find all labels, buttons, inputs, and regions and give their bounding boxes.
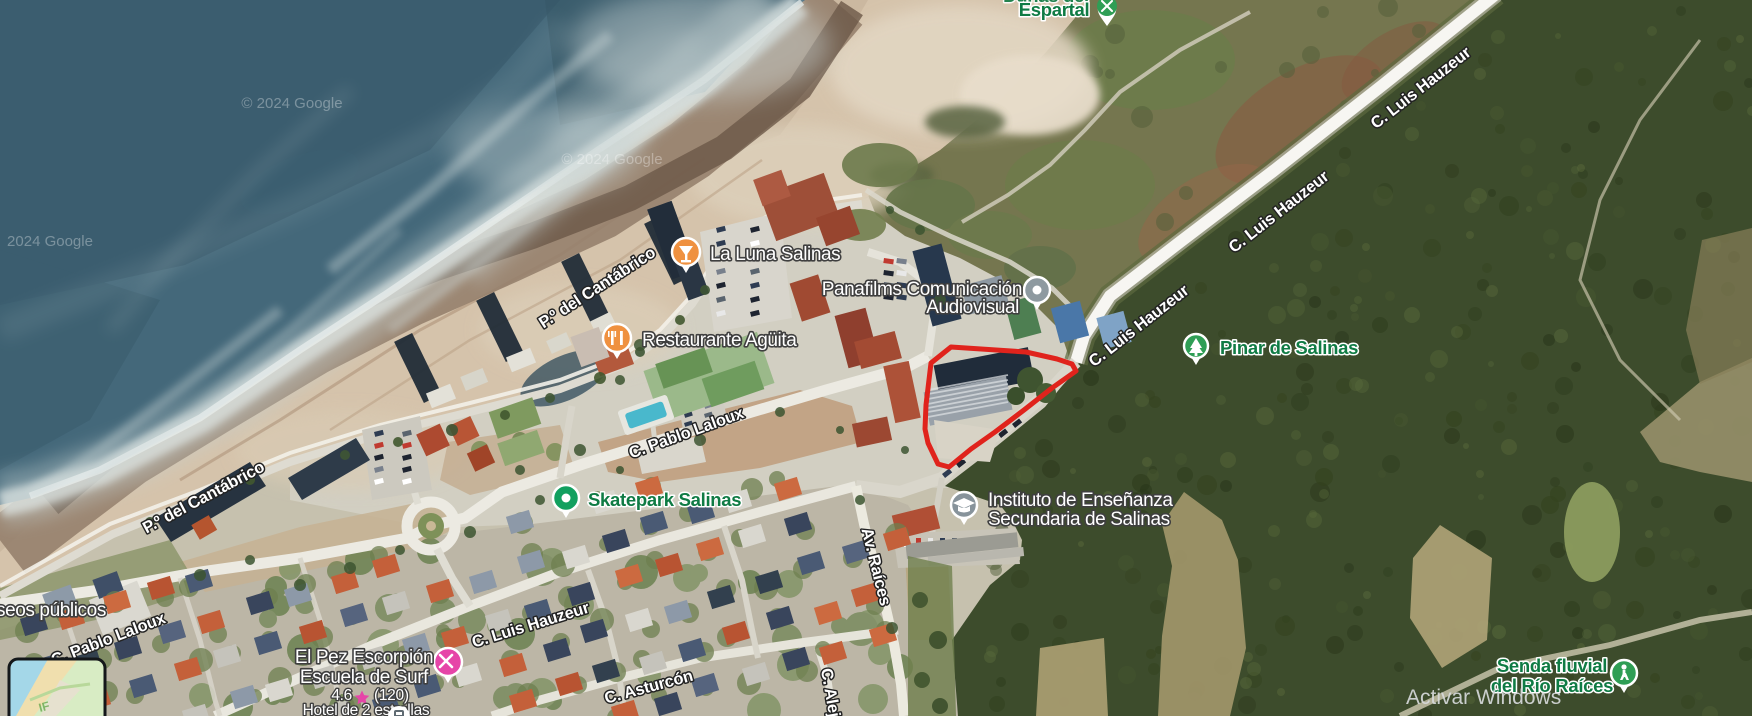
svg-text:2024 Google: 2024 Google bbox=[7, 233, 93, 250]
svg-text:Instituto de Enseñanza: Instituto de Enseñanza bbox=[988, 490, 1173, 511]
svg-text:Hotel de 2 estrellas: Hotel de 2 estrellas bbox=[303, 702, 430, 716]
svg-text:Espartal: Espartal bbox=[1019, 0, 1090, 20]
svg-text:seos públicos: seos públicos bbox=[0, 600, 106, 621]
svg-text:Escuela de Surf: Escuela de Surf bbox=[300, 667, 429, 688]
svg-text:Audiovisual: Audiovisual bbox=[926, 297, 1019, 318]
svg-text:Skatepark Salinas: Skatepark Salinas bbox=[588, 489, 741, 510]
svg-text:Pinar de Salinas: Pinar de Salinas bbox=[1220, 337, 1358, 358]
svg-text:© 2024 Google: © 2024 Google bbox=[561, 151, 662, 168]
svg-text:Senda fluvial: Senda fluvial bbox=[1497, 655, 1607, 676]
svg-text:Secundaria de Salinas: Secundaria de Salinas bbox=[988, 509, 1170, 530]
svg-text:© 2024 Google: © 2024 Google bbox=[241, 95, 342, 112]
svg-text:Activar Windows: Activar Windows bbox=[1406, 686, 1561, 709]
svg-text:La Luna Salinas: La Luna Salinas bbox=[710, 244, 840, 265]
svg-text:El Pez Escorpión: El Pez Escorpión bbox=[295, 647, 433, 668]
svg-text:Restaurante Agüita: Restaurante Agüita bbox=[642, 330, 797, 351]
